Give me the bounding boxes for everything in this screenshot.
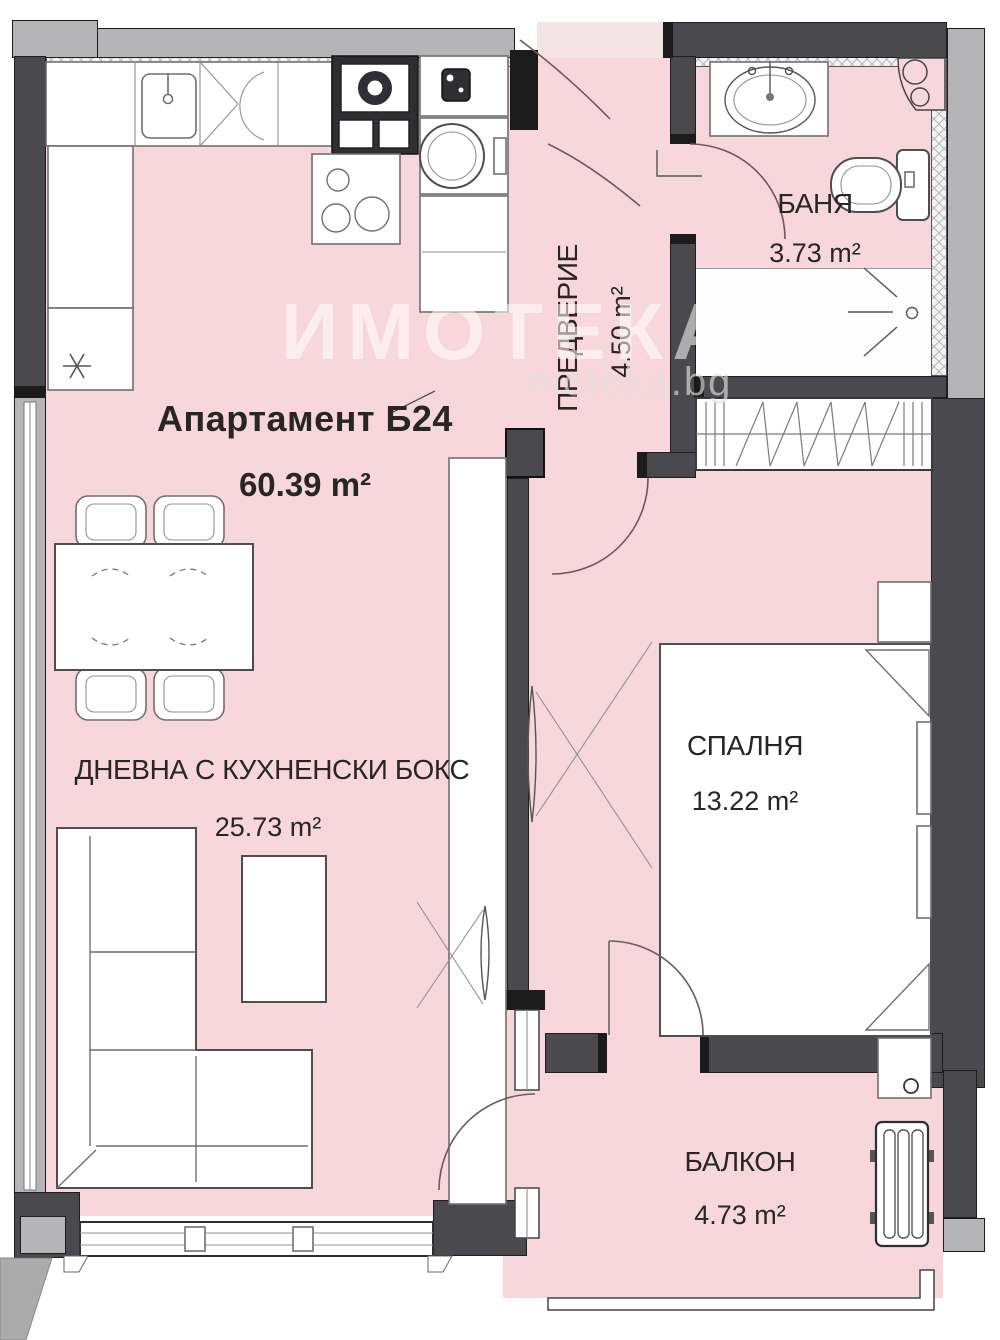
wall-left-window-strip bbox=[14, 396, 46, 1196]
wall-bathroom-bottom-cap bbox=[694, 376, 704, 398]
floor-plan: Апартамент Б24 60.39 m² ДНЕВНА С КУХНЕНС… bbox=[0, 0, 1000, 1340]
wall-hall-bath-upper bbox=[670, 56, 696, 142]
wall-bedroom-left-cap bbox=[503, 990, 545, 1010]
wall-left-cap bbox=[14, 386, 46, 398]
room-label-bedroom: СПАЛНЯ bbox=[655, 730, 835, 762]
window-corner-tick bbox=[428, 1256, 452, 1272]
plan-title: Апартамент Б24 bbox=[105, 398, 505, 440]
wall-bedroom-bottom-right bbox=[700, 1033, 943, 1073]
room-area-living: 25.73 m² bbox=[168, 812, 368, 843]
window-pier-right bbox=[433, 1200, 527, 1256]
wall-top-right-exterior bbox=[663, 22, 947, 58]
wall-hall-bedroom bbox=[645, 452, 696, 478]
wall-junction-block bbox=[505, 428, 545, 478]
wall-top-corner-block bbox=[12, 20, 98, 58]
room-living-fill bbox=[46, 56, 512, 1216]
bath-door-cap-bottom bbox=[670, 234, 696, 244]
plan-total-area: 60.39 m² bbox=[105, 466, 505, 504]
room-balcony-fill bbox=[545, 1070, 943, 1298]
wall-bedroom-left bbox=[507, 478, 529, 992]
window-pier-left-inset bbox=[20, 1216, 66, 1254]
exterior-wedge bbox=[0, 1258, 52, 1340]
room-area-bathroom: 3.73 m² bbox=[725, 238, 905, 269]
wall-left-exterior bbox=[14, 56, 46, 390]
room-area-balcony: 4.73 m² bbox=[650, 1200, 830, 1231]
wall-balcony-right-block bbox=[943, 1218, 985, 1252]
room-label-balcony: БАЛКОН bbox=[650, 1146, 830, 1178]
wall-top-right-end-cap bbox=[663, 22, 673, 58]
bottom-window bbox=[80, 1222, 433, 1256]
room-label-living: ДНЕВНА С КУХНЕНСКИ БОКС bbox=[57, 754, 487, 786]
wall-bedroom-right bbox=[931, 398, 985, 1088]
balcony-door-cap-right bbox=[700, 1033, 709, 1073]
wall-bathroom-bottom bbox=[694, 376, 947, 398]
room-label-hallway: ПРЕДВЕРИЕ bbox=[552, 218, 582, 438]
wall-entrance-left-cap bbox=[510, 50, 538, 130]
wall-bathroom-right-hatch bbox=[931, 56, 947, 376]
room-label-bathroom: БАНЯ bbox=[725, 188, 905, 220]
wall-right-exterior-strip bbox=[947, 28, 985, 448]
room-bedroom-fill bbox=[525, 470, 931, 1072]
window-corner-tick bbox=[64, 1256, 88, 1272]
wall-balcony-right bbox=[943, 1070, 977, 1218]
wall-hall-bath-lower bbox=[670, 238, 696, 478]
hall-bedroom-door-cap bbox=[637, 452, 647, 478]
balcony-door-cap-left bbox=[598, 1033, 607, 1073]
wardrobe bbox=[696, 398, 932, 470]
bath-door-cap-top bbox=[670, 134, 696, 144]
room-area-hallway: 4.50 m² bbox=[606, 272, 634, 392]
room-area-bedroom: 13.22 m² bbox=[655, 786, 835, 817]
shower-floor bbox=[694, 268, 931, 378]
bathroom-door-gap bbox=[668, 140, 696, 240]
entrance-recess bbox=[537, 22, 663, 58]
